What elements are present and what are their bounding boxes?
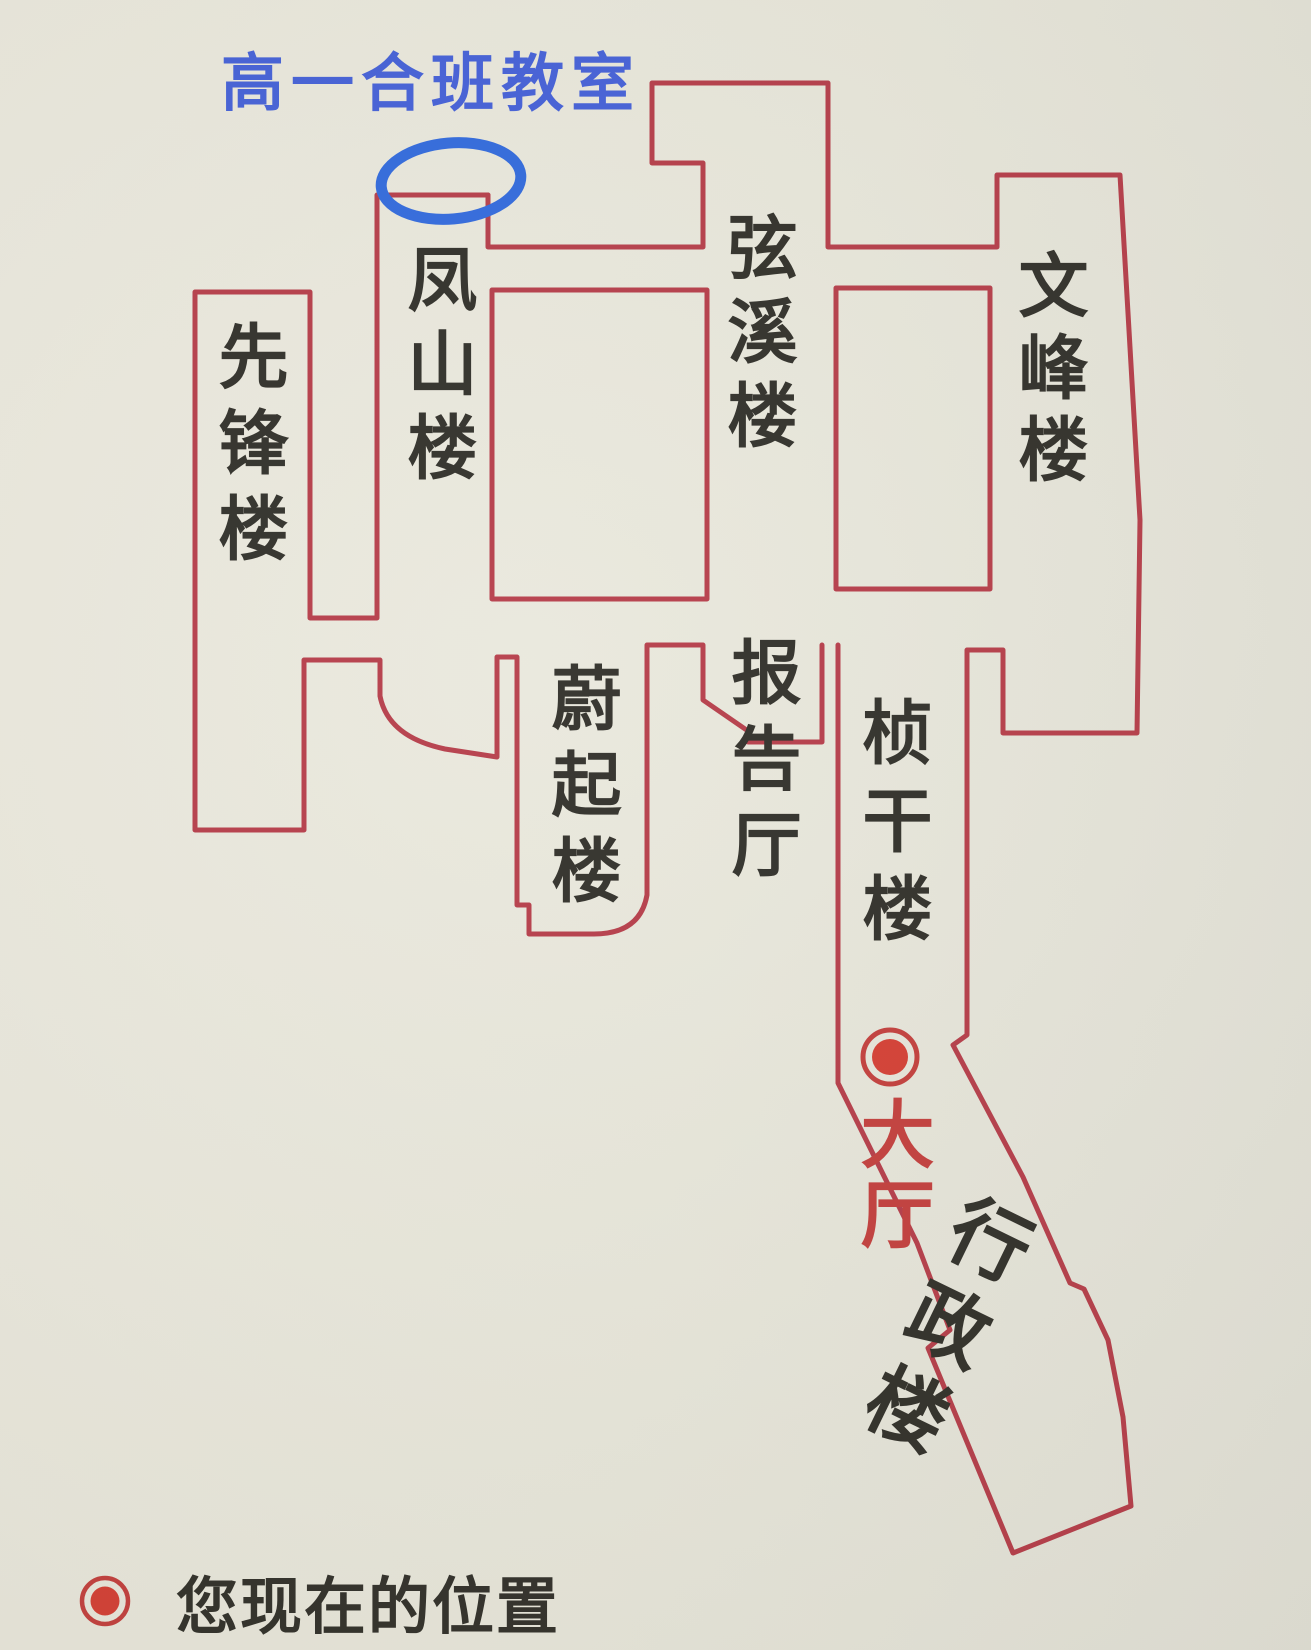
legend-location-dot-icon [76, 1572, 134, 1630]
classroom-circle-annotation [378, 137, 524, 225]
map-drawing [0, 0, 1311, 1650]
building-label-xianfeng: 先锋楼 [213, 320, 283, 578]
legend-text: 您现在的位置 [176, 1556, 560, 1646]
building-label-baogaoting: 报告厅 [726, 636, 796, 894]
building-label-zhengan: 桢干楼 [857, 696, 927, 960]
legend: 您现在的位置 [76, 1556, 560, 1646]
building-label-weiqi: 蔚起楼 [546, 662, 616, 920]
campus-map: 高一合班教室 先锋楼 凤山楼 弦溪楼 文峰楼 蔚起楼 报告厅 桢干楼 大厅 行政… [0, 0, 1311, 1650]
hall-label-dating: 大厅 [854, 1096, 928, 1256]
classroom-annotation-label: 高一合班教室 [221, 33, 641, 124]
current-location-marker [863, 1030, 917, 1084]
building-label-fengshan: 凤山楼 [402, 243, 472, 495]
building-label-wenfeng: 文峰楼 [1013, 249, 1083, 495]
outline-courtyard-west [492, 290, 707, 599]
outline-courtyard-east [836, 288, 990, 589]
building-label-xianxi: 弦溪楼 [722, 211, 792, 463]
